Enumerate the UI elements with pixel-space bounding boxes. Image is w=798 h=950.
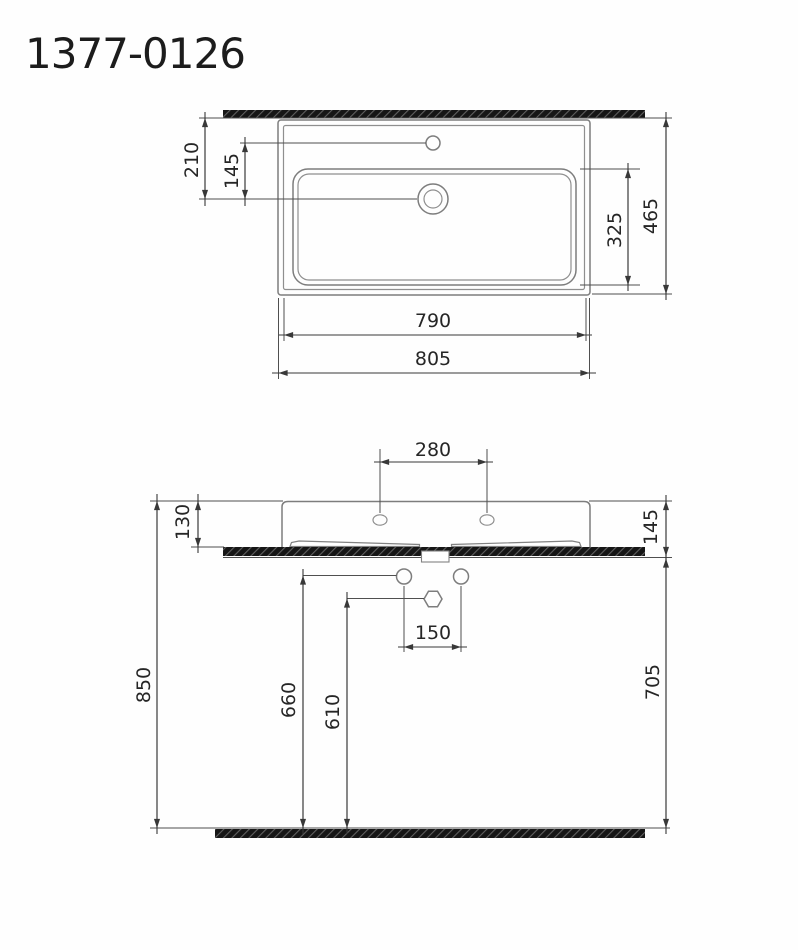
dim-label-counter-underside-height: 705 (642, 664, 664, 700)
dim-label-supply-height: 660 (278, 682, 300, 718)
trap-nut-hexagon (424, 591, 442, 607)
tap-hole-right (480, 515, 494, 525)
tap-hole-left (373, 515, 387, 525)
dim-label-overall-width: 805 (415, 348, 451, 370)
front-view: 280 130 850 660 610 (133, 439, 672, 838)
dim-basin-width: 790 (278, 298, 592, 341)
technical-drawing: 1377-0126 210 145 (0, 0, 798, 950)
dim-label-basin-depth: 325 (604, 212, 626, 248)
dim-label-rim-height: 850 (133, 667, 155, 703)
dim-label-supply-hole-spacing: 150 (415, 622, 451, 644)
dim-counter-underside-height: 705 (642, 552, 666, 834)
dim-rim-above-counter: 130 (172, 494, 224, 553)
plan-view: 210 145 465 325 (181, 110, 672, 379)
dim-label-tap-hole-spacing: 280 (415, 439, 451, 461)
dim-trap-height: 610 (322, 592, 424, 834)
dim-label-basin-width: 790 (415, 310, 451, 332)
drain-outlet-stub (422, 551, 450, 562)
basin-slope-right (452, 541, 582, 547)
dim-label-wall-to-drain: 210 (181, 142, 203, 178)
basin-front-outline (282, 502, 590, 548)
drawing-page: 1377-0126 210 145 (0, 0, 798, 950)
product-code: 1377-0126 (25, 29, 245, 78)
dim-label-rim-to-counter-underside: 145 (640, 509, 662, 545)
dim-overall-depth: 465 (592, 112, 672, 300)
dim-label-overall-depth: 465 (640, 198, 662, 234)
floor-hatch (215, 829, 645, 838)
wall-hatch (223, 110, 645, 118)
supply-connection-right (454, 569, 469, 584)
dim-label-trap-height: 610 (322, 694, 344, 730)
dim-basin-depth: 325 (580, 163, 640, 291)
dim-supply-hole-spacing: 150 (398, 586, 467, 652)
dim-rim-height: 850 (133, 494, 157, 834)
tap-hole-plan (426, 136, 440, 150)
dim-label-tap-to-drain: 145 (221, 153, 243, 189)
supply-connection-left (397, 569, 412, 584)
basin-slope-left (290, 541, 420, 547)
dim-tap-to-drain: 145 (221, 137, 426, 206)
dim-label-rim-above-counter: 130 (172, 504, 194, 540)
drain-hole-plan (418, 184, 448, 214)
